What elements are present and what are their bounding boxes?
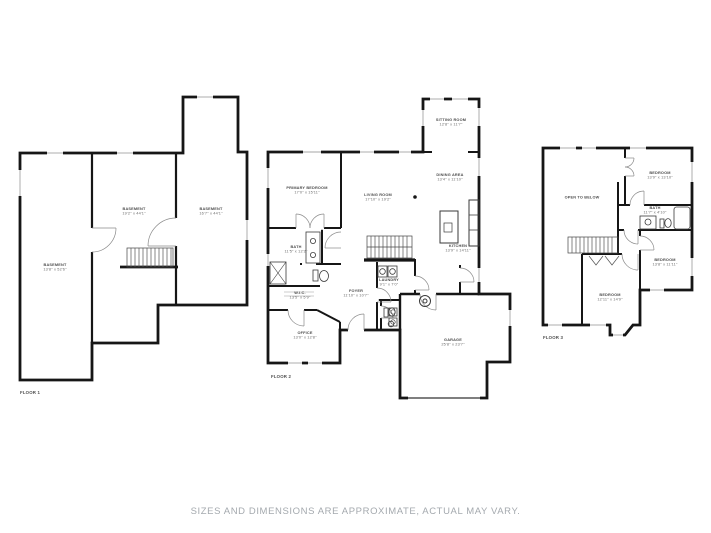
stairs-icon <box>568 237 618 253</box>
room-dims: 11'7" x 4'10" <box>644 211 667 216</box>
room-dims: 19'2" x 44'1" <box>122 212 145 217</box>
room-label-bedroom-top: BEDROOM 13'9" x 13'10" <box>647 171 673 180</box>
room-dims: 16'7" x 44'1" <box>199 212 222 217</box>
room-dims: 11'10" x 10'7" <box>343 294 368 299</box>
room-label-wic: W.I.C. 13'5" x 5'9" <box>290 291 311 300</box>
room-label-office: OFFICE 13'0" x 12'8" <box>293 331 316 340</box>
window-marks <box>20 97 247 240</box>
room-label-dining-area: DINING AREA 13'4" x 11'10" <box>436 173 463 182</box>
disclaimer-text: SIZES AND DIMENSIONS ARE APPROXIMATE, AC… <box>0 506 711 517</box>
room-dims: 13'4" x 11'10" <box>436 178 463 183</box>
room-dims: 13'0" x 12'8" <box>293 336 316 341</box>
room-label-laundry: LAUNDRY 9'1" x 7'0" <box>379 278 399 287</box>
room-dims: 17'0" x 15'11" <box>286 191 327 196</box>
stairs-icon <box>367 236 412 258</box>
ceiling-fixture-dot <box>413 195 417 199</box>
room-label-bath-upper: BATH 11'7" x 4'10" <box>644 206 667 215</box>
room-label-basement-middle: BASEMENT 19'2" x 44'1" <box>122 207 145 216</box>
room-label-garage: GARAGE 25'8" x 23'7" <box>441 338 464 347</box>
room-label-bath: BATH 11'5" x 12'2" <box>285 245 308 254</box>
floor-1-tag: FLOOR 1 <box>20 391 40 395</box>
stairs-icon <box>127 248 173 267</box>
room-dims: 13'5" x 5'9" <box>290 296 311 301</box>
room-label-bedroom-bottom: BEDROOM 12'11" x 14'9" <box>597 293 622 302</box>
room-label-bedroom-right: BEDROOM 13'8" x 11'11" <box>653 258 678 267</box>
room-dims: 12'8" x 11'7" <box>436 123 466 128</box>
room-dims: 13'9" x 13'10" <box>647 176 673 181</box>
room-dims: 13'8" x 52'6" <box>43 268 66 273</box>
room-name: OPEN TO BELOW <box>565 196 600 201</box>
room-label-living-room: LIVING ROOM 17'10" x 19'2" <box>364 193 392 202</box>
room-label-primary-bedroom: PRIMARY BEDROOM 17'0" x 15'11" <box>286 186 327 195</box>
floorplan-drawing <box>0 0 711 533</box>
room-label-basement-left: BASEMENT 13'8" x 52'6" <box>43 263 66 272</box>
floor-1-plan <box>20 97 247 380</box>
room-label-basement-right: BASEMENT 16'7" x 44'1" <box>199 207 222 216</box>
door-arc-icons <box>92 218 176 252</box>
room-dims: 13'9" x 14'11" <box>445 249 470 254</box>
laundry-machines-icon <box>378 266 397 277</box>
floor-3-tag: FLOOR 3 <box>543 336 563 340</box>
room-label-kitchen: KITCHEN 13'9" x 14'11" <box>445 244 470 253</box>
room-dims: 17'10" x 19'2" <box>364 198 392 203</box>
floorplan-canvas: BASEMENT 13'8" x 52'6" BASEMENT 19'2" x … <box>0 0 711 533</box>
kitchen-island-icon <box>440 200 479 246</box>
room-dims: 13'8" x 11'11" <box>653 263 678 268</box>
closet-doors-icon <box>589 256 619 265</box>
room-label-sitting-room: SITTING ROOM 12'8" x 11'7" <box>436 118 466 127</box>
room-label-open-to-below: OPEN TO BELOW <box>565 196 600 201</box>
room-dims: 12'11" x 14'9" <box>597 298 622 303</box>
floor-2-tag: FLOOR 2 <box>271 375 291 379</box>
room-dims: 25'8" x 23'7" <box>441 343 464 348</box>
room-label-foyer: FOYER 11'10" x 10'7" <box>343 289 368 298</box>
room-dims: 11'5" x 12'2" <box>285 250 308 255</box>
room-dims: 9'1" x 7'0" <box>379 283 399 288</box>
